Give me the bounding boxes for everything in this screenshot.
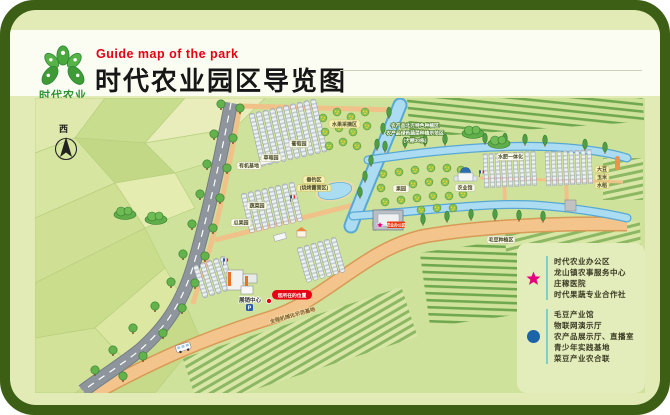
label-orchard: 果园 <box>396 186 406 193</box>
label-crop-tag2: 玉米 <box>597 174 608 181</box>
legend-dot-group: 毛豆产业馆 物联网演示厅 农产品展示厅、直播室 青少年实践基地 菜豆产业农合联 <box>520 309 660 364</box>
label-agri-hall: 农业馆 <box>456 185 472 192</box>
canal-bridge <box>565 200 576 211</box>
page-title: 时代农业园区导览图 <box>95 61 347 98</box>
label-organic-base: 有机基地 <box>239 163 259 170</box>
logo-emblem-icon <box>37 44 89 86</box>
road-marker <box>615 156 620 170</box>
label-fishing-sub: (烧烤露营区) <box>300 185 329 192</box>
legend-item: 物联网演示厅 <box>554 320 634 331</box>
label-crop-tag1: 大豆 <box>597 166 607 173</box>
label-info-line3: (大棚30栋) <box>404 137 427 144</box>
label-strawberry: 草莓园 <box>263 155 278 162</box>
park-guide-card: 时代农业 TIME AGRICULTURE Guide map of the p… <box>0 0 670 415</box>
legend-item: 农产品展示厅、直播室 <box>554 331 634 342</box>
legend-item: 时代果蔬专业合作社 <box>554 289 626 300</box>
label-vegetable: 蔬菜园 <box>249 203 264 210</box>
subtitle-english: Guide map of the park <box>96 47 238 61</box>
legend-dot-icon <box>520 309 546 364</box>
legend-separator <box>546 256 548 300</box>
legend-item: 庄稼医院 <box>554 278 626 289</box>
label-exhibition-center: 展销中心 <box>239 296 262 304</box>
parking-letter: P <box>248 306 252 312</box>
label-melon: 瓜果园 <box>233 220 248 227</box>
label-grape: 葡萄园 <box>290 141 306 148</box>
legend-item: 青少年实践基地 <box>554 342 634 353</box>
legend-item: 菜豆产业农合联 <box>554 353 634 364</box>
label-crop-tag3: 水稻 <box>596 182 607 189</box>
label-you-are-here: 您所在的位置 <box>278 292 307 299</box>
label-office-sign: 农业办公区 <box>386 223 406 228</box>
legend-item: 时代农业办公区 <box>554 256 626 267</box>
legend-separator <box>546 309 548 364</box>
you-are-here-dot <box>266 298 271 303</box>
label-orchard-pick: 水果采摘区 <box>331 121 357 128</box>
label-fishing: 垂钓区 <box>306 177 321 184</box>
inner-panel: 时代农业 TIME AGRICULTURE Guide map of the p… <box>10 10 660 405</box>
header-divider <box>340 70 642 71</box>
label-water-fert: 水肥一体化 <box>497 154 523 161</box>
label-soybean-area: 毛豆种植区 <box>488 237 513 244</box>
legend-star-icon <box>520 256 546 300</box>
legend-item: 龙山镇农事服务中心 <box>554 267 626 278</box>
label-info-line2: 农产品绿色蔬菜种植示范区 <box>385 130 444 137</box>
label-info-line1: 农产品北方特色种植区 <box>390 122 439 129</box>
legend-item: 毛豆产业馆 <box>554 309 634 320</box>
map-legend: 时代农业办公区 龙山镇农事服务中心 庄稼医院 时代果蔬专业合作社 毛豆产业馆 物… <box>520 256 660 364</box>
compass-west-label: 西 <box>59 124 68 134</box>
legend-star-group: 时代农业办公区 龙山镇农事服务中心 庄稼医院 时代果蔬专业合作社 <box>520 256 660 300</box>
